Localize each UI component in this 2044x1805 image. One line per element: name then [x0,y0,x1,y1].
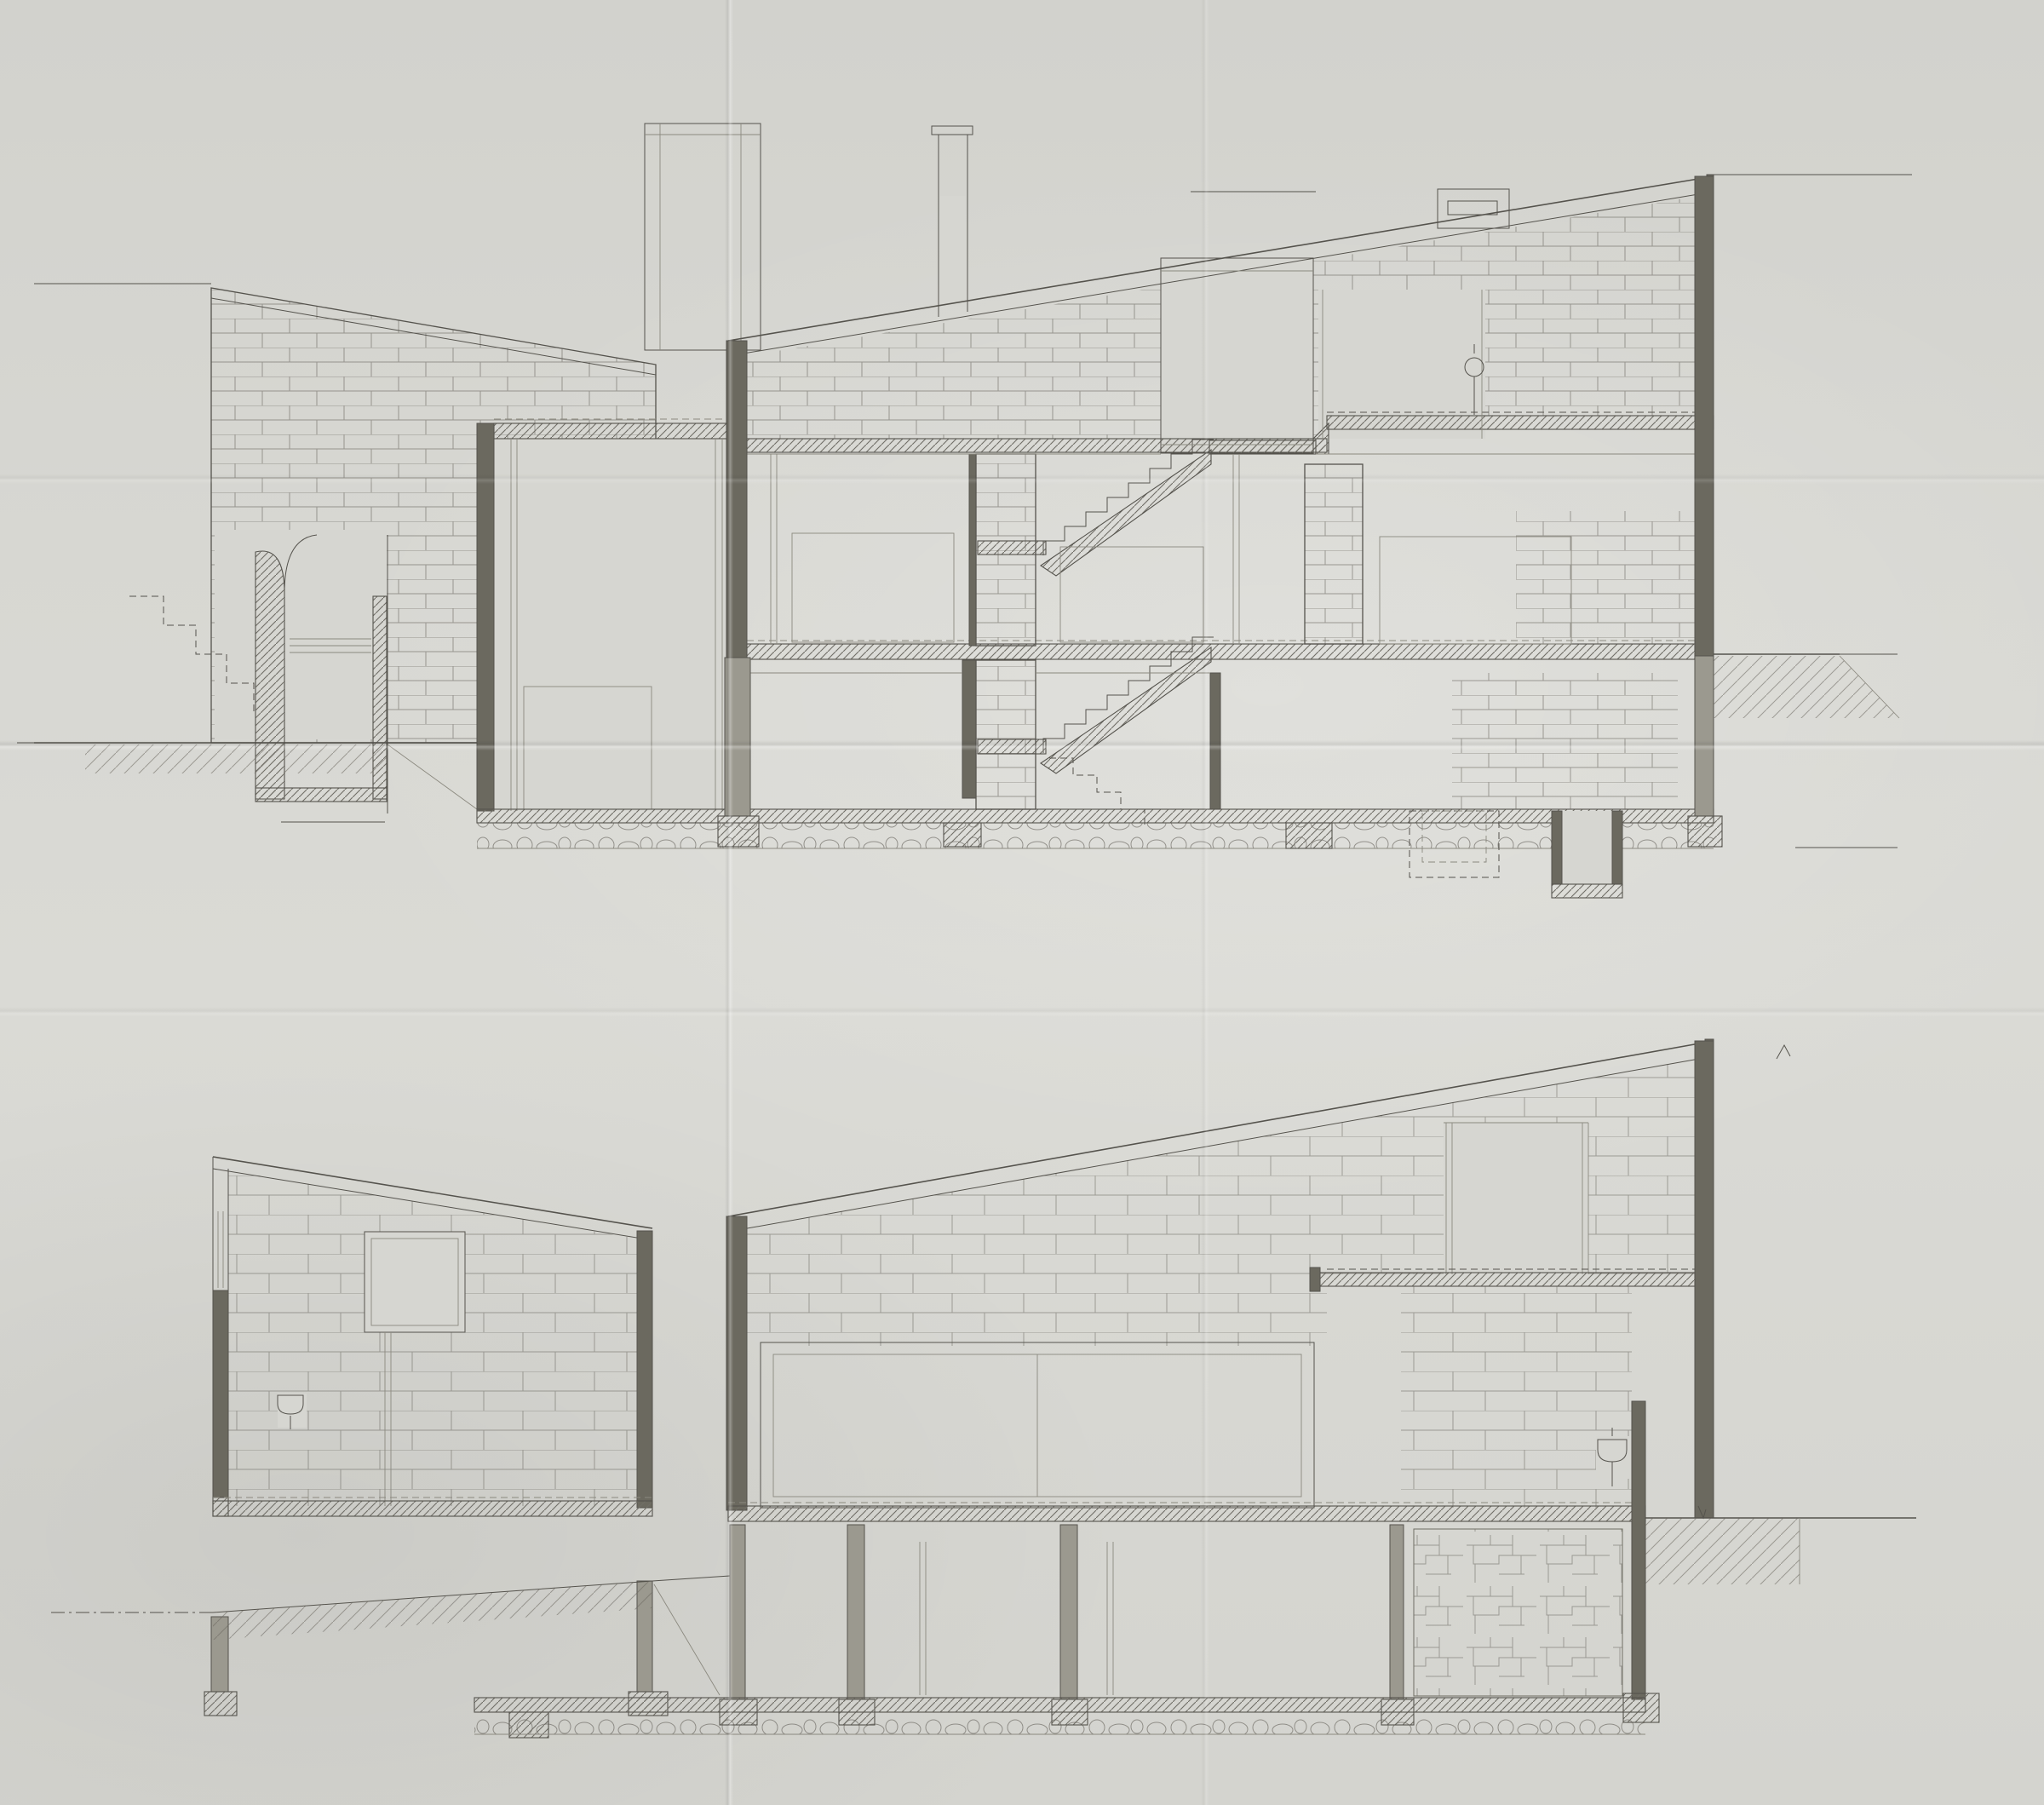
paper-crease [0,740,2044,750]
paper-crease [1201,0,1209,1805]
building-sections-drawing [0,0,2044,1805]
paper-crease [0,1007,2044,1017]
paper-crease [0,474,2044,484]
section-ab [17,124,1912,898]
drawing-sheet [0,0,2044,1805]
paper-crease [725,0,733,1805]
section-cd [51,1039,1916,1738]
